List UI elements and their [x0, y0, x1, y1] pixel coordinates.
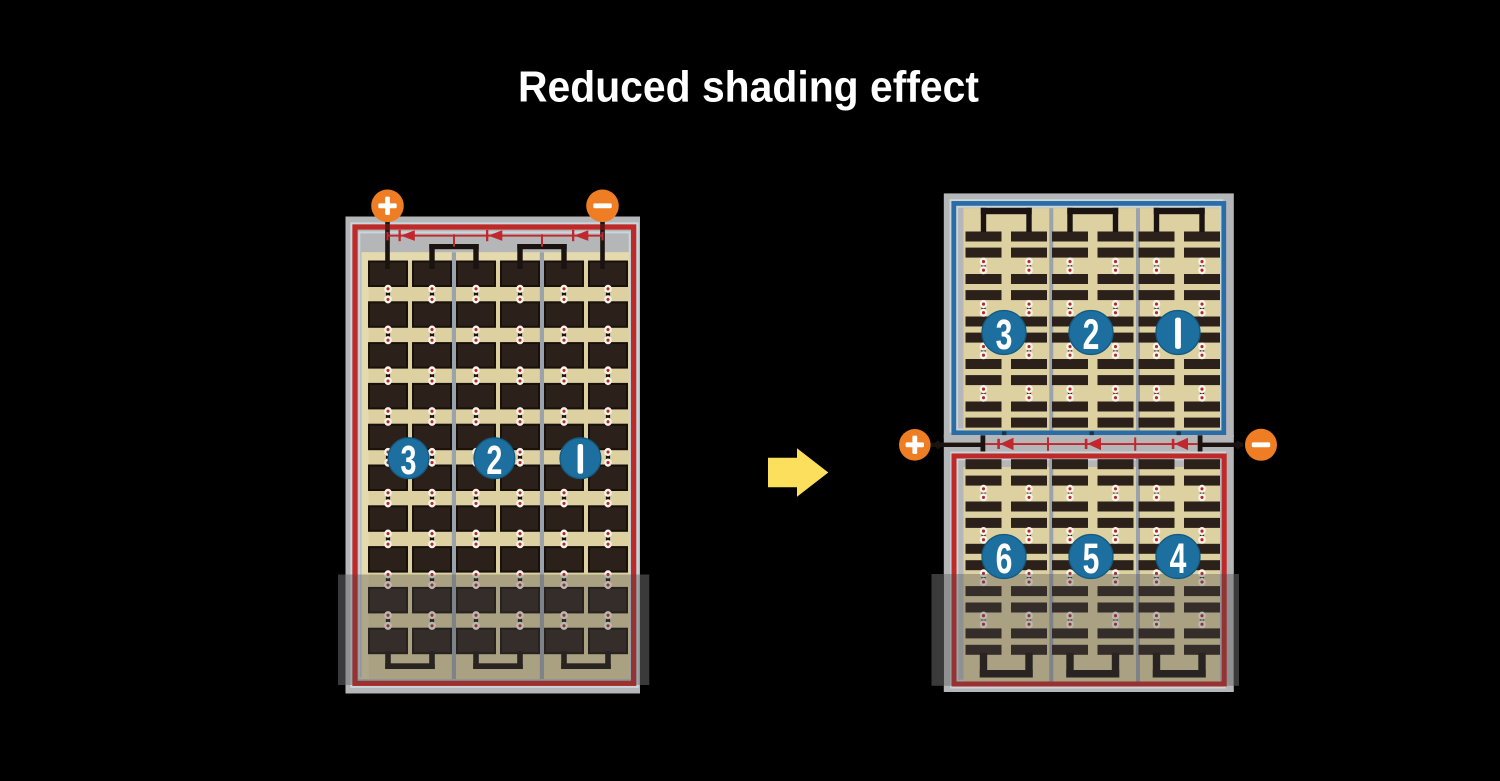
svg-text:5: 5 — [1083, 533, 1100, 582]
svg-text:Reduced shading effect: Reduced shading effect — [518, 64, 979, 112]
svg-text:4: 4 — [1170, 533, 1187, 582]
svg-text:6: 6 — [996, 533, 1013, 582]
svg-text:2: 2 — [486, 438, 502, 483]
svg-text:2: 2 — [1083, 309, 1100, 358]
svg-text:3: 3 — [401, 438, 417, 483]
svg-text:3: 3 — [996, 309, 1013, 358]
